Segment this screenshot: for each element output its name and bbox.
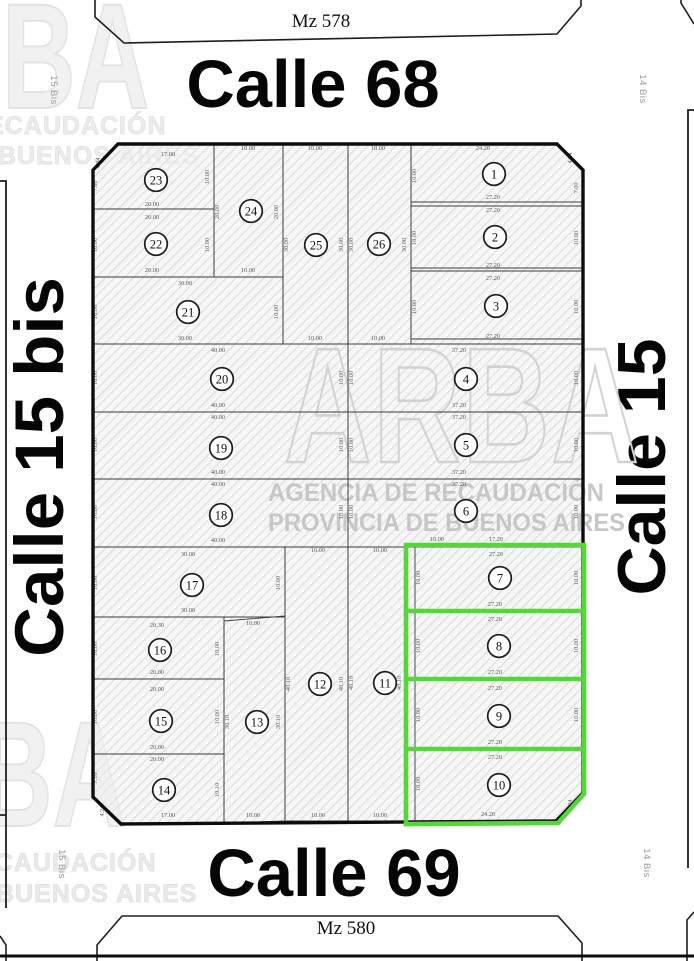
svg-text:30.10: 30.10 xyxy=(275,715,282,729)
svg-text:40.10: 40.10 xyxy=(285,677,292,691)
svg-text:Calle 68: Calle 68 xyxy=(186,47,439,122)
svg-text:22: 22 xyxy=(150,237,163,251)
svg-text:40.00: 40.00 xyxy=(211,414,225,421)
svg-text:10.00: 10.00 xyxy=(348,438,355,452)
svg-text:37.20: 37.20 xyxy=(452,347,466,354)
svg-text:10.00: 10.00 xyxy=(204,170,211,184)
svg-text:30.00: 30.00 xyxy=(401,238,408,252)
svg-text:15: 15 xyxy=(155,714,168,728)
svg-text:17.00: 17.00 xyxy=(161,151,175,158)
svg-text:18: 18 xyxy=(215,508,228,522)
svg-text:17: 17 xyxy=(186,578,199,592)
svg-text:20.00: 20.00 xyxy=(145,201,159,208)
svg-text:10.00: 10.00 xyxy=(415,777,422,791)
svg-text:27.20: 27.20 xyxy=(488,739,502,746)
svg-text:10.00: 10.00 xyxy=(411,169,418,183)
svg-text:Mz 578: Mz 578 xyxy=(292,11,351,32)
svg-text:PROVINCIA DE BUENOS AIRES: PROVINCIA DE BUENOS AIRES xyxy=(268,509,625,537)
svg-text:17.20: 17.20 xyxy=(489,536,503,543)
svg-text:10.00: 10.00 xyxy=(415,708,422,722)
svg-text:RECAUDACIÓN: RECAUDACIÓN xyxy=(0,110,167,140)
svg-text:10.00: 10.00 xyxy=(214,642,221,656)
svg-text:27.20: 27.20 xyxy=(489,551,503,558)
svg-text:27.20: 27.20 xyxy=(486,275,500,282)
svg-text:4: 4 xyxy=(463,372,470,386)
svg-text:30.00: 30.00 xyxy=(178,280,192,287)
svg-text:10.00: 10.00 xyxy=(573,231,580,245)
svg-text:10.00: 10.00 xyxy=(373,812,387,819)
svg-text:Calle 15 bis: Calle 15 bis xyxy=(1,277,78,657)
svg-text:30.00: 30.00 xyxy=(181,551,195,558)
svg-text:20.00: 20.00 xyxy=(150,744,164,751)
svg-text:26: 26 xyxy=(373,237,386,251)
svg-text:20.00: 20.00 xyxy=(150,669,164,676)
svg-text:20.00: 20.00 xyxy=(150,756,164,763)
svg-text:10.00: 10.00 xyxy=(415,571,422,585)
svg-text:27.20: 27.20 xyxy=(486,207,500,214)
svg-text:14 Bis: 14 Bis xyxy=(637,74,648,103)
svg-text:Mz 580: Mz 580 xyxy=(317,918,376,939)
svg-text:6: 6 xyxy=(463,504,469,518)
svg-text:40.00: 40.00 xyxy=(211,469,225,476)
svg-text:10.00: 10.00 xyxy=(348,505,355,519)
svg-text:10.00: 10.00 xyxy=(411,231,418,245)
svg-text:30.00: 30.00 xyxy=(181,607,195,614)
svg-text:20.00: 20.00 xyxy=(145,214,159,221)
svg-text:10.00: 10.00 xyxy=(246,812,260,819)
svg-text:30.00: 30.00 xyxy=(283,238,290,252)
svg-text:20.00: 20.00 xyxy=(150,686,164,693)
svg-text:AGENCIA DE RECAUDACIÓN: AGENCIA DE RECAUDACIÓN xyxy=(268,477,604,507)
svg-text:10.00: 10.00 xyxy=(246,620,260,627)
svg-text:10: 10 xyxy=(493,778,506,792)
svg-text:10.00: 10.00 xyxy=(241,267,255,274)
svg-text:8: 8 xyxy=(496,639,502,653)
svg-text:20.00: 20.00 xyxy=(214,205,221,219)
svg-text:24.20: 24.20 xyxy=(476,145,490,152)
svg-text:37.20: 37.20 xyxy=(452,481,466,488)
svg-text:10.00: 10.00 xyxy=(430,536,444,543)
svg-text:13: 13 xyxy=(251,715,264,729)
svg-text:10.00: 10.00 xyxy=(241,145,255,152)
svg-text:10.00: 10.00 xyxy=(573,571,580,585)
svg-text:40.00: 40.00 xyxy=(211,481,225,488)
svg-text:23: 23 xyxy=(150,173,163,187)
svg-text:10.00: 10.00 xyxy=(311,812,325,819)
svg-text:RECAUDACIÓN: RECAUDACIÓN xyxy=(0,847,157,877)
svg-text:27.20: 27.20 xyxy=(488,754,502,761)
svg-text:12: 12 xyxy=(314,677,327,691)
svg-text:3: 3 xyxy=(493,299,499,313)
svg-text:30.00: 30.00 xyxy=(178,335,192,342)
svg-text:27.20: 27.20 xyxy=(486,333,500,340)
svg-text:40.10: 40.10 xyxy=(396,676,403,690)
svg-text:40.00: 40.00 xyxy=(211,347,225,354)
svg-text:15 Bis: 15 Bis xyxy=(56,849,67,878)
svg-text:17.00: 17.00 xyxy=(161,812,175,819)
svg-text:25: 25 xyxy=(310,238,323,252)
svg-text:27.20: 27.20 xyxy=(488,685,502,692)
svg-text:14 Bis: 14 Bis xyxy=(641,848,652,877)
svg-text:27.20: 27.20 xyxy=(488,669,502,676)
svg-text:10.00: 10.00 xyxy=(371,335,385,342)
svg-text:15 Bis: 15 Bis xyxy=(48,75,59,104)
svg-text:10.00: 10.00 xyxy=(373,547,387,554)
svg-text:20.00: 20.00 xyxy=(145,267,159,274)
svg-text:30.00: 30.00 xyxy=(348,238,355,252)
svg-text:1: 1 xyxy=(491,167,497,181)
svg-text:24: 24 xyxy=(245,204,258,218)
svg-text:10.00: 10.00 xyxy=(204,238,211,252)
svg-text:14: 14 xyxy=(158,783,171,797)
svg-text:16: 16 xyxy=(154,643,167,657)
svg-text:10.00: 10.00 xyxy=(348,371,355,385)
svg-text:10.00: 10.00 xyxy=(573,371,580,385)
svg-text:30.00: 30.00 xyxy=(338,238,345,252)
svg-text:10.00: 10.00 xyxy=(308,335,322,342)
svg-text:10.00: 10.00 xyxy=(573,300,580,314)
svg-text:10.00: 10.00 xyxy=(275,576,282,590)
svg-text:10.10: 10.10 xyxy=(214,783,221,797)
svg-text:10.00: 10.00 xyxy=(338,505,345,519)
svg-text:10.00: 10.00 xyxy=(308,145,322,152)
svg-text:40.10: 40.10 xyxy=(348,676,355,690)
svg-text:21: 21 xyxy=(182,305,195,319)
svg-text:10.00: 10.00 xyxy=(311,547,325,554)
svg-text:9: 9 xyxy=(496,709,502,723)
svg-text:27.20: 27.20 xyxy=(488,616,502,623)
svg-text:10.00: 10.00 xyxy=(273,305,280,319)
svg-text:10.00: 10.00 xyxy=(214,710,221,724)
svg-text:27.20: 27.20 xyxy=(486,194,500,201)
svg-text:10.00: 10.00 xyxy=(415,639,422,653)
svg-text:7: 7 xyxy=(497,571,503,585)
svg-text:10.00: 10.00 xyxy=(371,145,385,152)
svg-text:10.00: 10.00 xyxy=(573,438,580,452)
svg-text:27.20: 27.20 xyxy=(488,601,502,608)
svg-text:BUENOS AIRES: BUENOS AIRES xyxy=(0,880,197,908)
svg-text:5: 5 xyxy=(463,438,469,452)
svg-text:10.00: 10.00 xyxy=(573,708,580,722)
svg-text:11: 11 xyxy=(379,676,391,690)
svg-text:40.00: 40.00 xyxy=(211,402,225,409)
svg-text:30.10: 30.10 xyxy=(224,715,231,729)
svg-text:20: 20 xyxy=(216,372,229,386)
svg-text:20.30: 20.30 xyxy=(150,622,164,629)
svg-text:10.00: 10.00 xyxy=(573,505,580,519)
svg-text:24.20: 24.20 xyxy=(481,811,495,818)
svg-text:37.20: 37.20 xyxy=(452,469,466,476)
svg-text:20.00: 20.00 xyxy=(273,205,280,219)
svg-text:10.00: 10.00 xyxy=(411,300,418,314)
svg-text:2: 2 xyxy=(492,230,498,244)
svg-text:7.00: 7.00 xyxy=(573,182,580,193)
svg-text:40.10: 40.10 xyxy=(338,677,345,691)
svg-text:10.00: 10.00 xyxy=(338,438,345,452)
svg-text:37.20: 37.20 xyxy=(452,402,466,409)
svg-text:10.00: 10.00 xyxy=(573,639,580,653)
svg-text:10.00: 10.00 xyxy=(338,371,345,385)
svg-text:37.20: 37.20 xyxy=(452,414,466,421)
svg-text:27.20: 27.20 xyxy=(486,262,500,269)
svg-text:19: 19 xyxy=(215,441,228,455)
svg-text:40.00: 40.00 xyxy=(211,537,225,544)
svg-text:Calle 69: Calle 69 xyxy=(207,836,460,911)
